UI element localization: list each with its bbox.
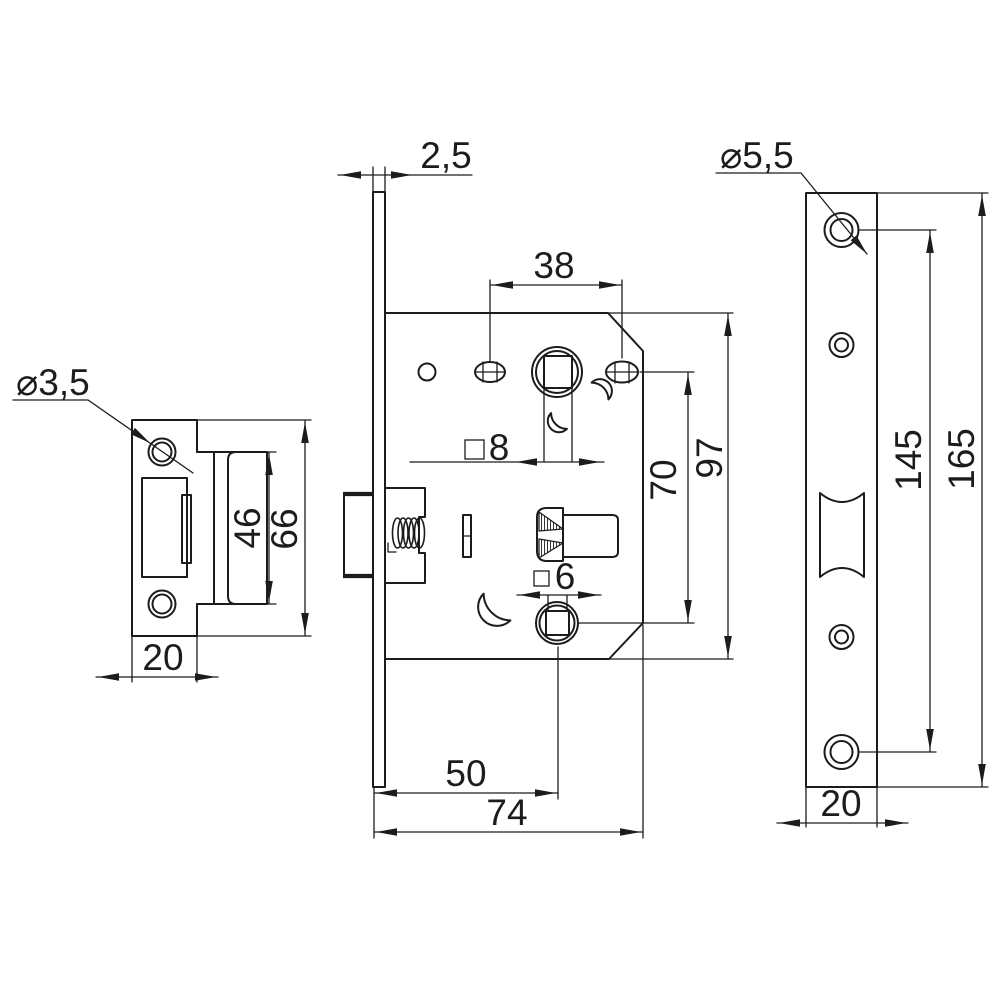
guide-slot (463, 515, 471, 557)
dim-faceplate-width: 20 (777, 783, 908, 827)
pin-hole (419, 364, 436, 381)
faceplate-width-label: 20 (820, 783, 861, 824)
lock-technical-drawing: ⌀3,5 46 66 20 (0, 0, 1000, 1000)
handle-hole-spacing-label: 38 (533, 245, 574, 286)
backset-label: 50 (445, 753, 486, 794)
dim-handle-hole-spacing: 38 (490, 245, 622, 362)
handle-spindle (532, 347, 582, 397)
lock-faceplate-strip (373, 192, 385, 787)
faceplate-pin-hole-lower (830, 625, 854, 649)
spindle-square-label: 8 (489, 427, 510, 468)
faceplate-hole-diameter-label: ⌀5,5 (720, 135, 794, 176)
faceplate-pin-hole-upper (830, 333, 854, 357)
faceplate-thickness-label: 2,5 (420, 135, 471, 176)
strike-plate-width-label: 20 (142, 637, 183, 678)
lock-body-view: 2,5 38 8 6 70 (338, 135, 733, 838)
wc-square-label: 6 (555, 556, 576, 597)
strike-cutout-height-label: 46 (227, 507, 268, 548)
dim-hole-center-distance: 70 (578, 372, 694, 623)
dim-faceplate-hole-diameter: ⌀5,5 (716, 135, 870, 256)
strike-hole-diameter-label: ⌀3,5 (16, 362, 90, 403)
body-depth-label: 74 (486, 792, 527, 833)
dim-faceplate-thickness: 2,5 (338, 135, 472, 192)
dim-body-depth: 74 (374, 625, 643, 838)
dim-strike-hole-diameter: ⌀3,5 (13, 362, 193, 473)
dim-backset: 50 (374, 647, 558, 799)
strike-latch-cutout (142, 478, 187, 577)
dim-strike-plate-width: 20 (96, 636, 218, 682)
oval-hole-left (475, 362, 505, 382)
faceplate-view: ⌀5,5 145 165 20 (716, 135, 988, 827)
body-height-label: 97 (689, 437, 730, 478)
dim-spindle-square: 8 (410, 388, 604, 468)
oval-hole-right (606, 362, 638, 384)
faceplate-latch-opening (820, 493, 864, 577)
wc-spindle (536, 602, 578, 644)
strike-plate-height-label: 66 (264, 508, 305, 549)
strike-plate-view: ⌀3,5 46 66 20 (13, 362, 311, 682)
wc-spring-mechanism (537, 508, 618, 561)
dim-screw-hole-spacing: 145 (858, 230, 936, 752)
hole-center-distance-label: 70 (643, 459, 684, 500)
square-symbol-small (534, 571, 549, 586)
drawing-canvas: ⌀3,5 46 66 20 (0, 0, 1000, 1000)
faceplate-length-label: 165 (941, 428, 982, 490)
square-symbol (465, 440, 484, 459)
faceplate-outline (806, 193, 877, 787)
screw-hole-spacing-label: 145 (888, 429, 929, 491)
